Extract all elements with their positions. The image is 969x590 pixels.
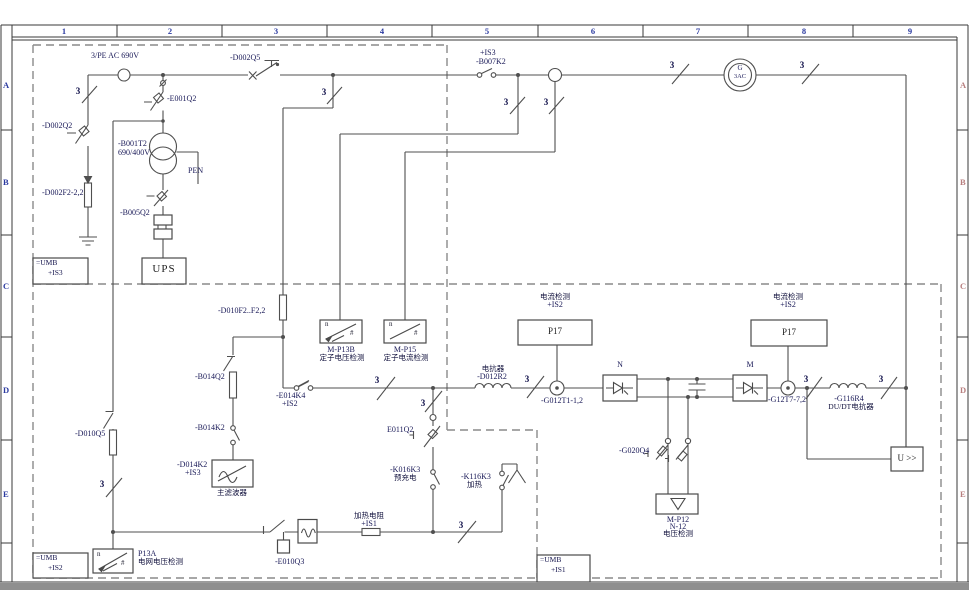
phase3-9: 3 xyxy=(421,398,426,408)
umb-is2-name: =UMB xyxy=(36,554,57,562)
p13a-hash-symbol: # xyxy=(121,560,125,568)
label-mp15-cn: 定子电流检测 xyxy=(384,354,429,362)
label-d010f2: -D010F2..F2,2 xyxy=(218,307,265,316)
emc-filter-box xyxy=(298,520,317,544)
grid-row-a: A xyxy=(3,80,9,90)
contactor-k016k3-b xyxy=(431,485,436,490)
fuse-b014q2 xyxy=(230,372,237,398)
label-main-filter: 主滤波器 xyxy=(217,489,247,497)
label-e001q2: -E001Q2 xyxy=(167,95,196,104)
label-current-det-left-loc: +IS2 xyxy=(547,301,563,310)
label-overvoltage: U >> xyxy=(898,453,917,463)
label-g012t1: -G012T1-1,2 xyxy=(541,397,583,406)
label-n-box: N xyxy=(617,361,623,370)
label-d010q5: -D010Q5 xyxy=(75,430,105,439)
heating-resistor xyxy=(362,529,380,536)
umb-is3-loc: +IS3 xyxy=(48,269,63,277)
label-m-box: M xyxy=(746,361,753,370)
scan-edge-band xyxy=(0,583,969,590)
mp15-n-symbol: n xyxy=(389,321,393,329)
dc-drop-terminal-b xyxy=(685,438,690,443)
grid-row-d-right: D xyxy=(960,385,966,395)
label-dudt: DU/DT电抗器 xyxy=(828,403,873,411)
contactor-b014k2-a xyxy=(231,426,236,431)
contactor-e014k4-b xyxy=(308,386,313,391)
label-p17-right: P17 xyxy=(782,327,796,337)
label-current-det-right-loc: +IS2 xyxy=(780,301,796,310)
contactor-k116k3-b xyxy=(500,485,505,490)
p13a-n-symbol: n xyxy=(97,551,101,559)
label-b005q2: -B005Q2 xyxy=(120,209,150,218)
grid-col-8: 8 xyxy=(802,26,806,36)
dc-drop-terminal-a xyxy=(665,438,670,443)
contactor-k116k3-a xyxy=(500,471,505,476)
grid-row-e: E xyxy=(3,489,9,499)
grid-col-3: 3 xyxy=(274,26,278,36)
phase3-1: 3 xyxy=(76,86,81,96)
label-p17-left: P17 xyxy=(548,326,562,336)
grid-row-c: C xyxy=(3,281,9,291)
label-e011q2: E011Q2 xyxy=(387,426,413,435)
schematic-page: 1 2 3 4 5 6 7 8 9 A B C D E A B C D E 3/… xyxy=(0,0,969,590)
label-b007k2: -B007K2 xyxy=(476,58,506,67)
label-e014k4-loc: +IS2 xyxy=(282,400,298,409)
label-g12t7: -G12T7-7,2 xyxy=(768,396,806,405)
label-ups: UPS xyxy=(152,263,175,275)
grid-col-1: 1 xyxy=(62,26,66,36)
plug-connector-lower xyxy=(154,229,172,239)
label-generator-3ac: 3AC xyxy=(734,73,746,80)
grid-row-a-right: A xyxy=(960,80,966,90)
label-d002q5: -D002Q5 xyxy=(230,54,260,63)
phase3-6: 3 xyxy=(800,60,805,70)
grid-col-2: 2 xyxy=(168,26,172,36)
label-mp13b-cn: 定子电压检测 xyxy=(320,354,365,362)
grid-row-b-right: B xyxy=(960,177,966,187)
label-d014k2-loc: +IS3 xyxy=(185,469,201,478)
label-b014q2: -B014Q2 xyxy=(195,373,225,382)
grid-col-6: 6 xyxy=(591,26,595,36)
phase3-11: 3 xyxy=(804,374,809,384)
phase3-7: 3 xyxy=(100,479,105,489)
umb-is1-loc: +IS1 xyxy=(551,566,566,574)
label-pen: PEN xyxy=(188,167,203,176)
contactor-b014k2-b xyxy=(231,440,236,445)
umb-is1-name: =UMB xyxy=(540,556,561,564)
e010q3-aux-box xyxy=(278,540,290,553)
label-voltage-det: 电压检测 xyxy=(663,530,693,538)
label-b014k2: -B014K2 xyxy=(195,424,225,433)
phase3-3: 3 xyxy=(504,97,509,107)
label-e010q3: -E010Q3 xyxy=(275,558,304,567)
fuse-d002f2 xyxy=(85,183,92,207)
sheet-border xyxy=(0,25,969,582)
label-d012r2: -D012R2 xyxy=(477,373,507,382)
label-supply: 3/PE AC 690V xyxy=(91,52,139,61)
grid-col-7: 7 xyxy=(696,26,700,36)
earth-terminal-circle xyxy=(430,415,436,421)
mp15-hash-symbol: # xyxy=(414,330,418,338)
umb-is3-name: =UMB xyxy=(36,259,57,267)
phase3-5: 3 xyxy=(670,60,675,70)
grid-col-5: 5 xyxy=(485,26,489,36)
grid-col-9: 9 xyxy=(908,26,912,36)
grid-row-e-right: E xyxy=(960,489,966,499)
mp13b-n-symbol: n xyxy=(325,321,329,329)
phase3-2: 3 xyxy=(322,87,327,97)
phase3-13: 3 xyxy=(459,520,464,530)
label-heating: 加热 xyxy=(467,481,482,489)
fuse-d010f2 xyxy=(280,295,287,320)
phase3-10: 3 xyxy=(525,374,530,384)
grid-row-c-right: C xyxy=(960,281,966,291)
plug-connector-upper xyxy=(154,215,172,225)
grid-row-b: B xyxy=(3,177,9,187)
grid-col-4: 4 xyxy=(380,26,384,36)
terminal-circle-mid xyxy=(549,69,562,82)
fuse-arrow xyxy=(85,177,92,184)
label-generator-g: G xyxy=(737,65,742,73)
umb-is2-loc: +IS2 xyxy=(48,564,63,572)
contactor-k016k3-a xyxy=(431,470,436,475)
label-b001t2-voltage: 690/400V xyxy=(118,149,150,158)
label-d002q2: -D002Q2 xyxy=(42,122,72,131)
grid-row-d: D xyxy=(3,385,9,395)
phase3-8: 3 xyxy=(375,375,380,385)
fuse-d010q5 xyxy=(110,430,117,455)
label-d002f2: -D002F2-2,2 xyxy=(42,189,84,198)
terminal-circle-left xyxy=(118,69,130,81)
enclosure-dashed-boundaries xyxy=(33,45,941,578)
contactor-e014k4-a xyxy=(294,386,299,391)
contactor-b007k2-a xyxy=(477,73,482,78)
mp13b-hash-symbol: # xyxy=(350,330,354,338)
phase3-12: 3 xyxy=(879,374,884,384)
label-grid-voltage-det: 电网电压检测 xyxy=(138,558,183,566)
phase3-4: 3 xyxy=(544,97,549,107)
label-heating-resistor-loc: +IS1 xyxy=(361,520,377,529)
schematic-canvas xyxy=(0,0,969,590)
voltage-meas-box xyxy=(656,494,698,514)
label-g020q4: -G020Q4 xyxy=(619,447,649,456)
label-precharge: 预充电 xyxy=(394,474,417,482)
contactor-b007k2-b xyxy=(491,73,496,78)
